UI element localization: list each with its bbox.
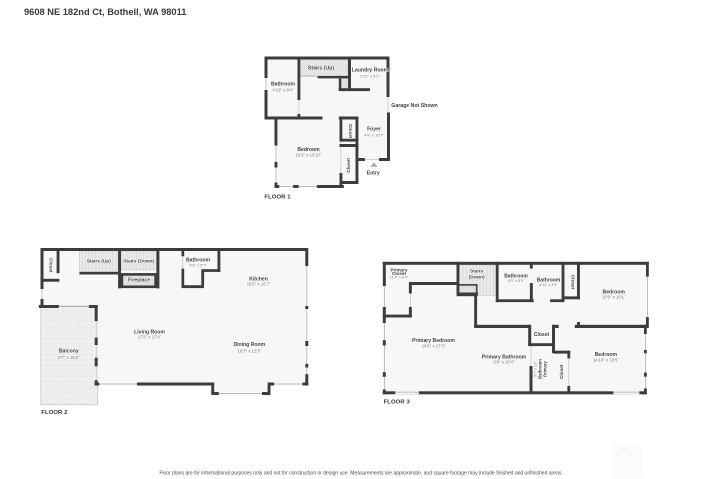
svg-text:Bathroom: Bathroom bbox=[538, 359, 543, 379]
svg-text:14'10" x 10'5": 14'10" x 10'5" bbox=[593, 358, 619, 363]
svg-text:16'3" x 12'3": 16'3" x 12'3" bbox=[238, 348, 262, 353]
svg-text:11'4" x 4'4": 11'4" x 4'4" bbox=[390, 275, 409, 279]
svg-text:Garage Not Shown: Garage Not Shown bbox=[391, 103, 437, 109]
svg-text:5'9" x 5'7": 5'9" x 5'7" bbox=[189, 262, 207, 267]
svg-text:FLOOR 2: FLOOR 2 bbox=[41, 410, 68, 416]
svg-text:Fireplace: Fireplace bbox=[128, 278, 150, 284]
svg-text:Stairs: Stairs bbox=[470, 269, 483, 274]
svg-text:16'5" x 16'7": 16'5" x 16'7" bbox=[247, 282, 271, 287]
svg-text:Closet: Closet bbox=[534, 332, 550, 338]
svg-text:Closet: Closet bbox=[569, 275, 575, 290]
svg-text:Stairs (Up): Stairs (Up) bbox=[308, 65, 335, 71]
svg-text:FLOOR 1: FLOOR 1 bbox=[264, 195, 291, 201]
svg-text:8'7" x 15'6": 8'7" x 15'6" bbox=[58, 355, 80, 360]
svg-text:Closet: Closet bbox=[48, 258, 54, 273]
svg-text:Floor plans are for informatio: Floor plans are for informational purpos… bbox=[159, 471, 562, 477]
svg-text:10'2" x 10'10": 10'2" x 10'10" bbox=[296, 153, 322, 158]
svg-text:Primary: Primary bbox=[542, 361, 547, 377]
svg-text:4'11" x 4'9": 4'11" x 4'9" bbox=[539, 283, 558, 287]
svg-text:Entry: Entry bbox=[367, 170, 380, 176]
svg-text:Stairs (Down): Stairs (Down) bbox=[123, 259, 154, 265]
svg-text:Balcony: Balcony bbox=[59, 349, 79, 355]
svg-text:4'9" x 10'7": 4'9" x 10'7" bbox=[364, 133, 384, 138]
svg-text:5'3" x 8'9": 5'3" x 8'9" bbox=[508, 279, 525, 283]
svg-text:Stairs (Up): Stairs (Up) bbox=[87, 259, 112, 265]
svg-text:14'6" x 17'3": 14'6" x 17'3" bbox=[422, 343, 446, 348]
svg-text:4'10" x 9'4": 4'10" x 9'4" bbox=[272, 87, 294, 92]
svg-text:FLOOR 3: FLOOR 3 bbox=[384, 399, 411, 405]
svg-text:5'7" x 2'2": 5'7" x 2'2" bbox=[533, 360, 537, 376]
svg-text:Closet: Closet bbox=[347, 124, 353, 139]
svg-text:8'8" x 10'4": 8'8" x 10'4" bbox=[493, 360, 515, 365]
svg-text:Closet: Closet bbox=[559, 364, 565, 379]
svg-text:17'2" x 17'4": 17'2" x 17'4" bbox=[138, 335, 162, 340]
svg-text:(Down): (Down) bbox=[469, 275, 485, 280]
svg-text:10'9" x 10'1": 10'9" x 10'1" bbox=[602, 295, 626, 300]
svg-text:9608 NE 182nd Ct, Bothell, WA: 9608 NE 182nd Ct, Bothell, WA 98011 bbox=[24, 7, 186, 17]
svg-text:Dining Room: Dining Room bbox=[233, 342, 265, 348]
svg-text:5'11" x 5'1": 5'11" x 5'1" bbox=[360, 74, 380, 79]
svg-text:Closet: Closet bbox=[346, 158, 352, 173]
